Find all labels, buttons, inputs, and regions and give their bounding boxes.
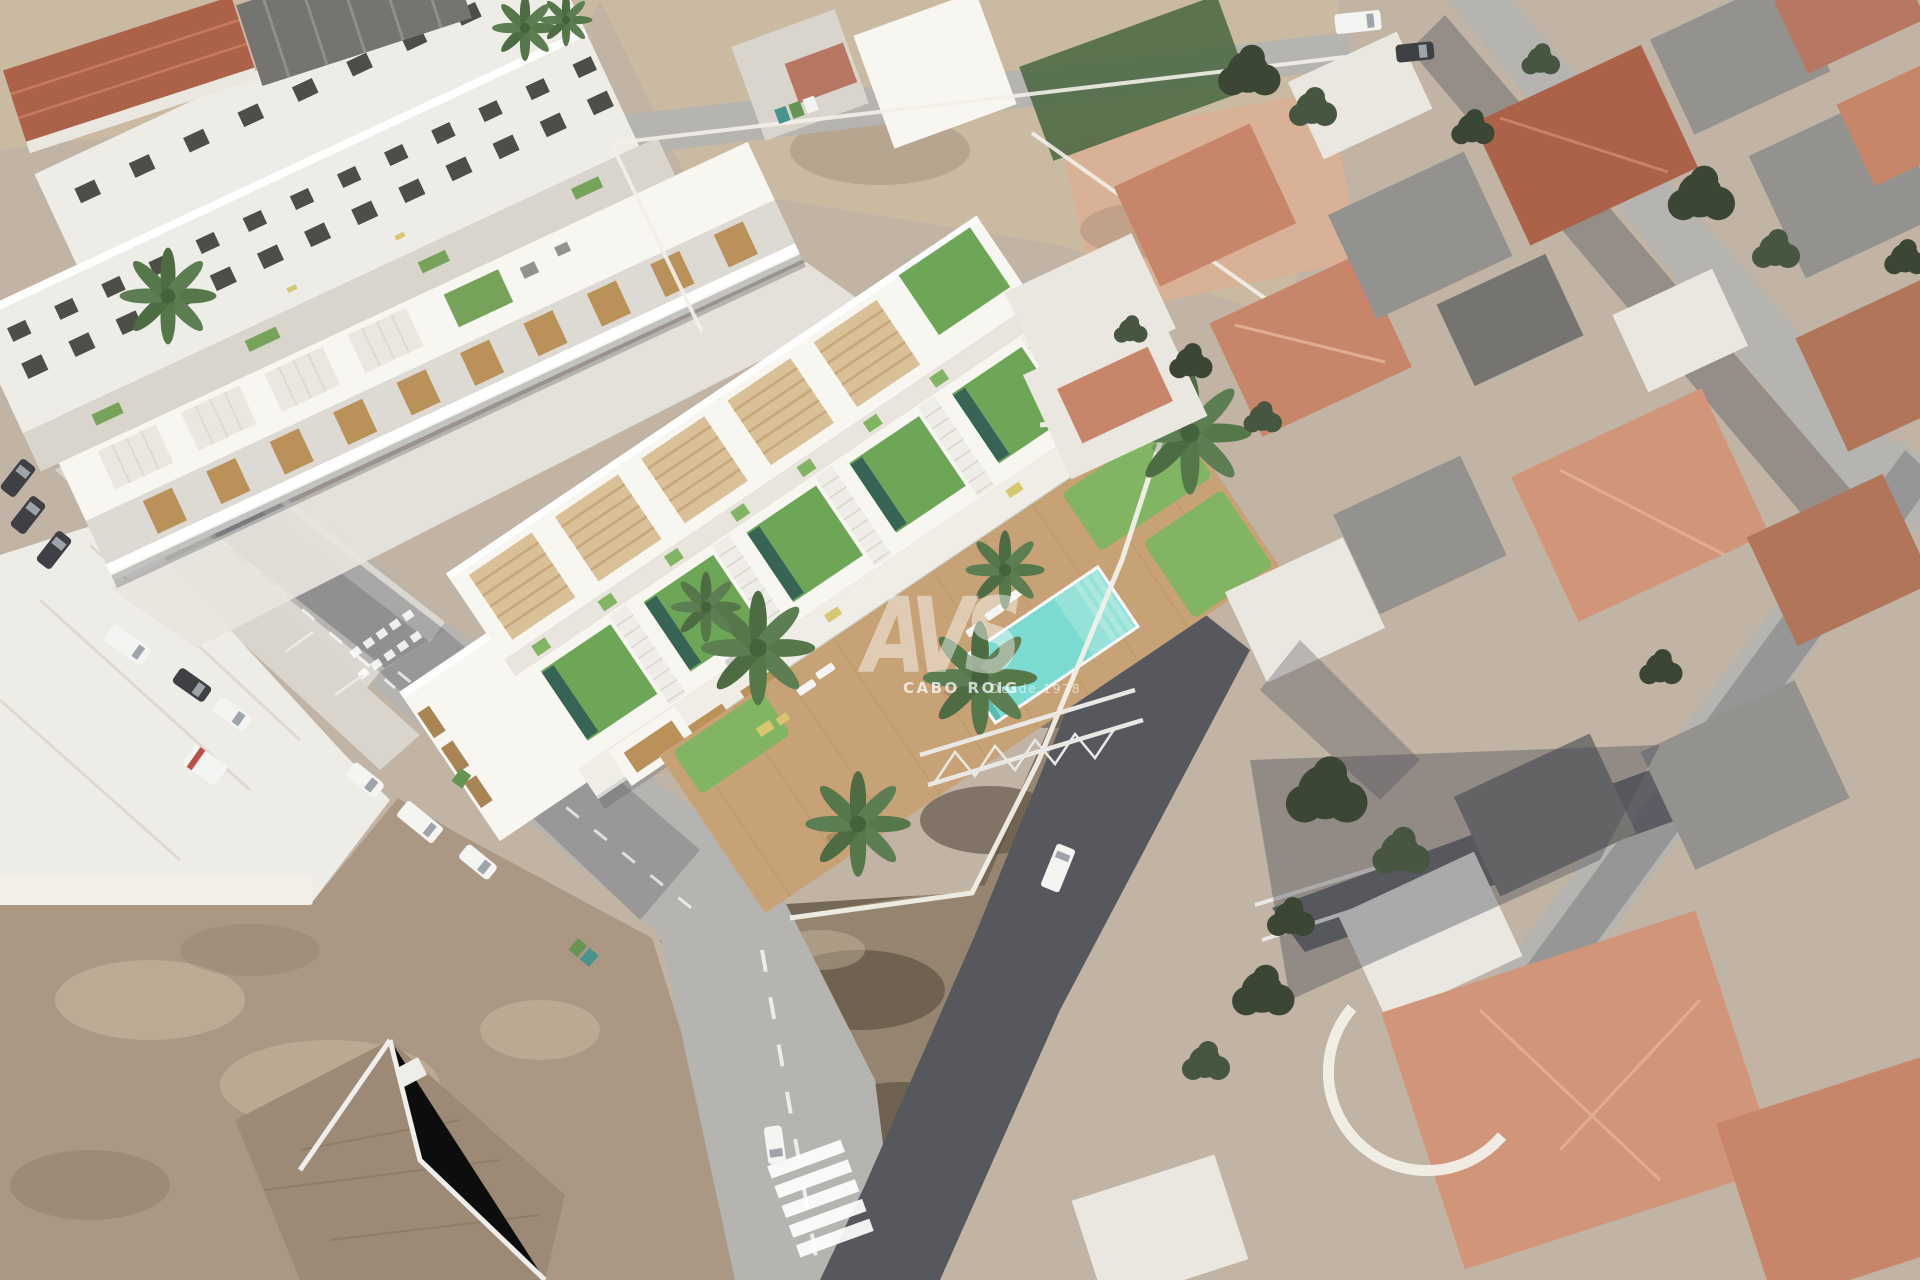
watermark-tagline: Desde 1978: [990, 681, 1081, 696]
scene-canvas: AVS CABO ROIG Desde 1978: [0, 0, 1920, 1280]
aerial-render-image: AVS CABO ROIG Desde 1978: [0, 0, 1920, 1280]
